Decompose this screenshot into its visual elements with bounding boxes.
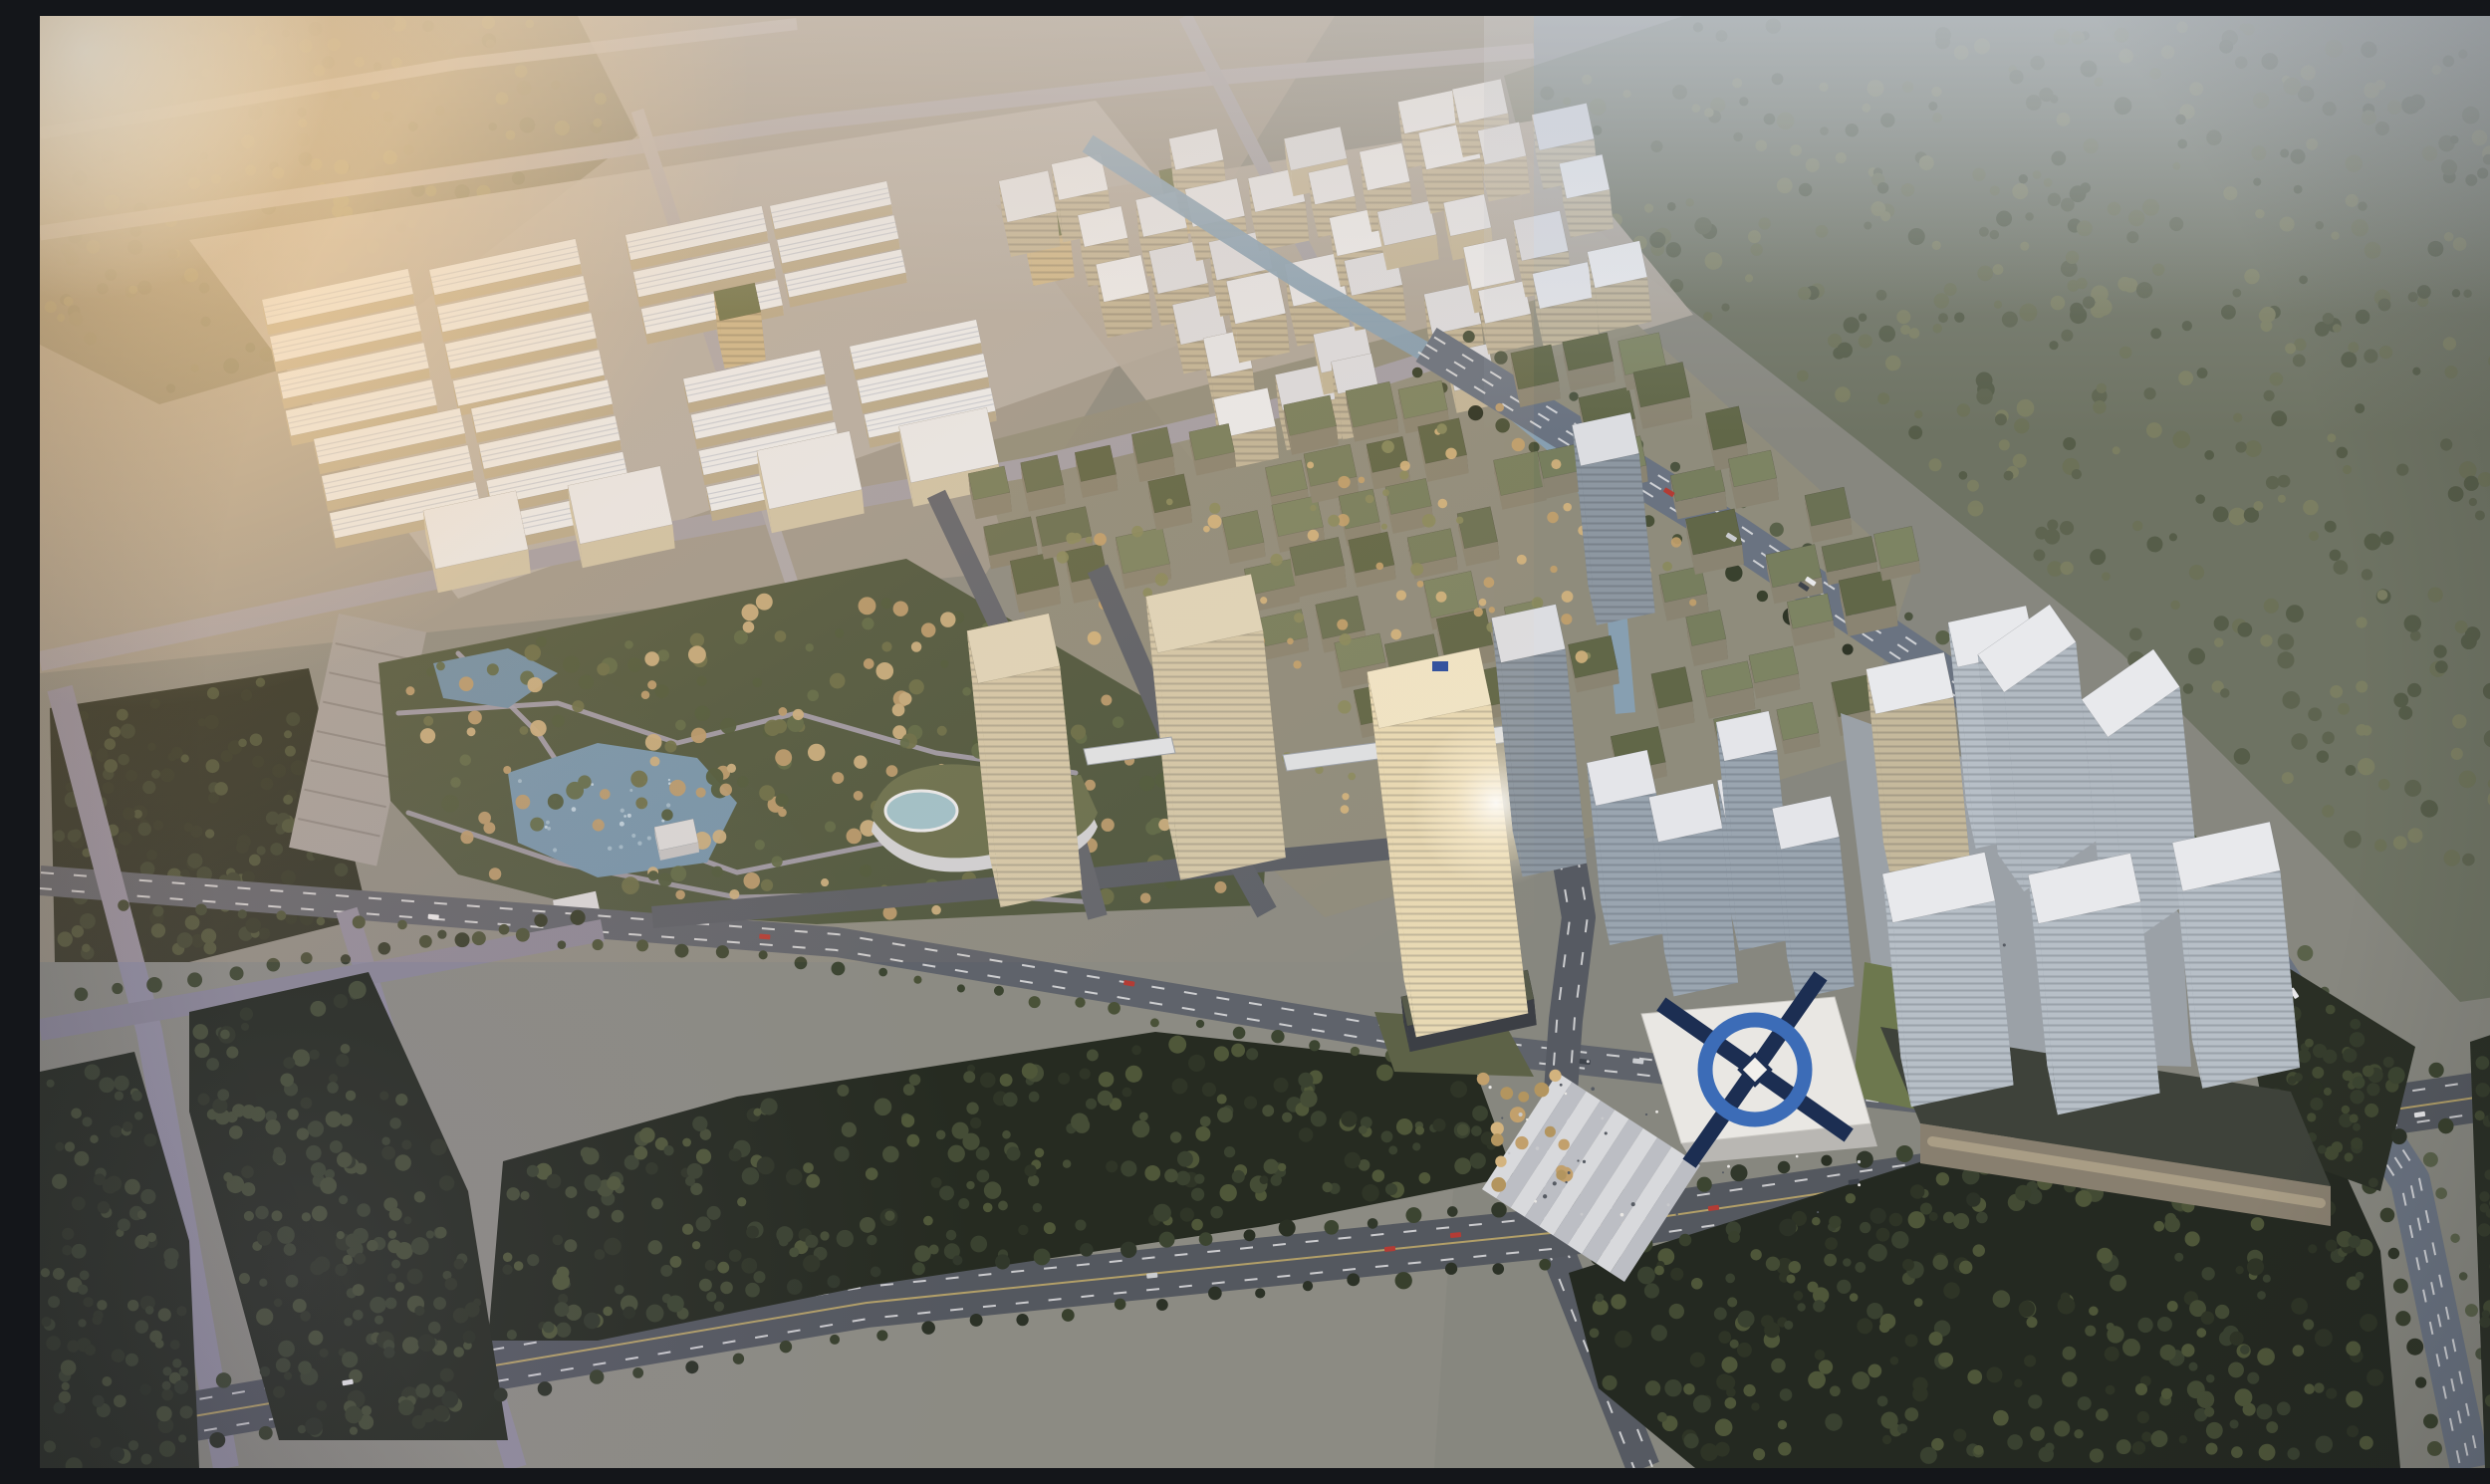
vignette — [40, 16, 2490, 1468]
city-aerial-scene — [40, 16, 2490, 1468]
scene-layers — [40, 16, 2490, 1468]
aerial-city-render — [40, 16, 2490, 1468]
